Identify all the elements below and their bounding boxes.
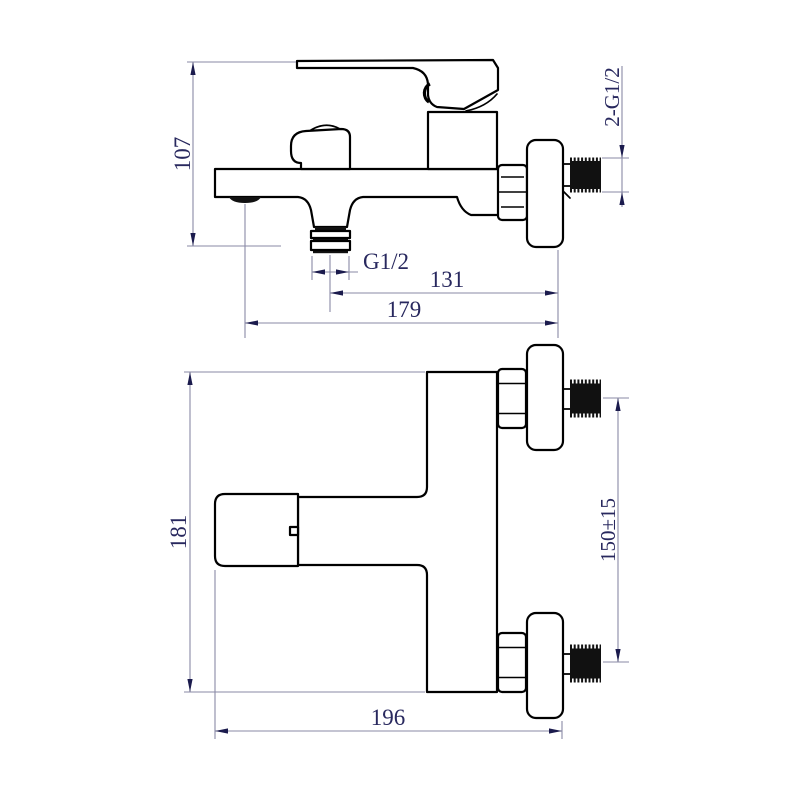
front-upper-nipple — [570, 382, 601, 416]
front-body — [298, 372, 497, 692]
front-lower-connection — [498, 613, 601, 718]
front-lower-escutcheon — [527, 613, 563, 718]
front-upper-hex-nut — [498, 369, 526, 428]
front-lower-nipple — [570, 647, 601, 681]
front-handle-notch — [290, 527, 298, 535]
side-aerator — [229, 197, 261, 203]
front-height-label: 181 — [166, 515, 191, 550]
side-handle-lever — [297, 60, 498, 109]
wall-thread-label: 2-G1/2 — [600, 67, 624, 127]
outlet-thread-label: G1/2 — [363, 249, 409, 274]
side-threaded-nipple — [570, 160, 601, 191]
side-view — [215, 60, 601, 253]
side-height-label: 107 — [170, 137, 195, 172]
overall-width-label: 196 — [371, 705, 406, 730]
faucet-technical-drawing: 107 G1/2 131 179 2-G1/2 181 150±15 196 — [0, 0, 800, 800]
front-view — [215, 345, 601, 718]
side-escutcheon — [527, 140, 563, 247]
side-outlet-thread — [311, 227, 350, 253]
side-diverter-knob — [291, 129, 350, 169]
overall-depth-label: 179 — [387, 297, 422, 322]
inlet-spacing-label: 150±15 — [596, 498, 620, 562]
technical-drawing-canvas: 107 G1/2 131 179 2-G1/2 181 150±15 196 — [0, 0, 800, 800]
side-cartridge-block — [428, 112, 497, 169]
outlet-to-wall-label: 131 — [430, 267, 465, 292]
front-lower-hex-nut — [498, 633, 526, 692]
front-handle — [215, 494, 298, 566]
front-upper-connection — [498, 345, 601, 450]
side-wall-connection — [498, 140, 601, 247]
front-upper-escutcheon — [527, 345, 563, 450]
